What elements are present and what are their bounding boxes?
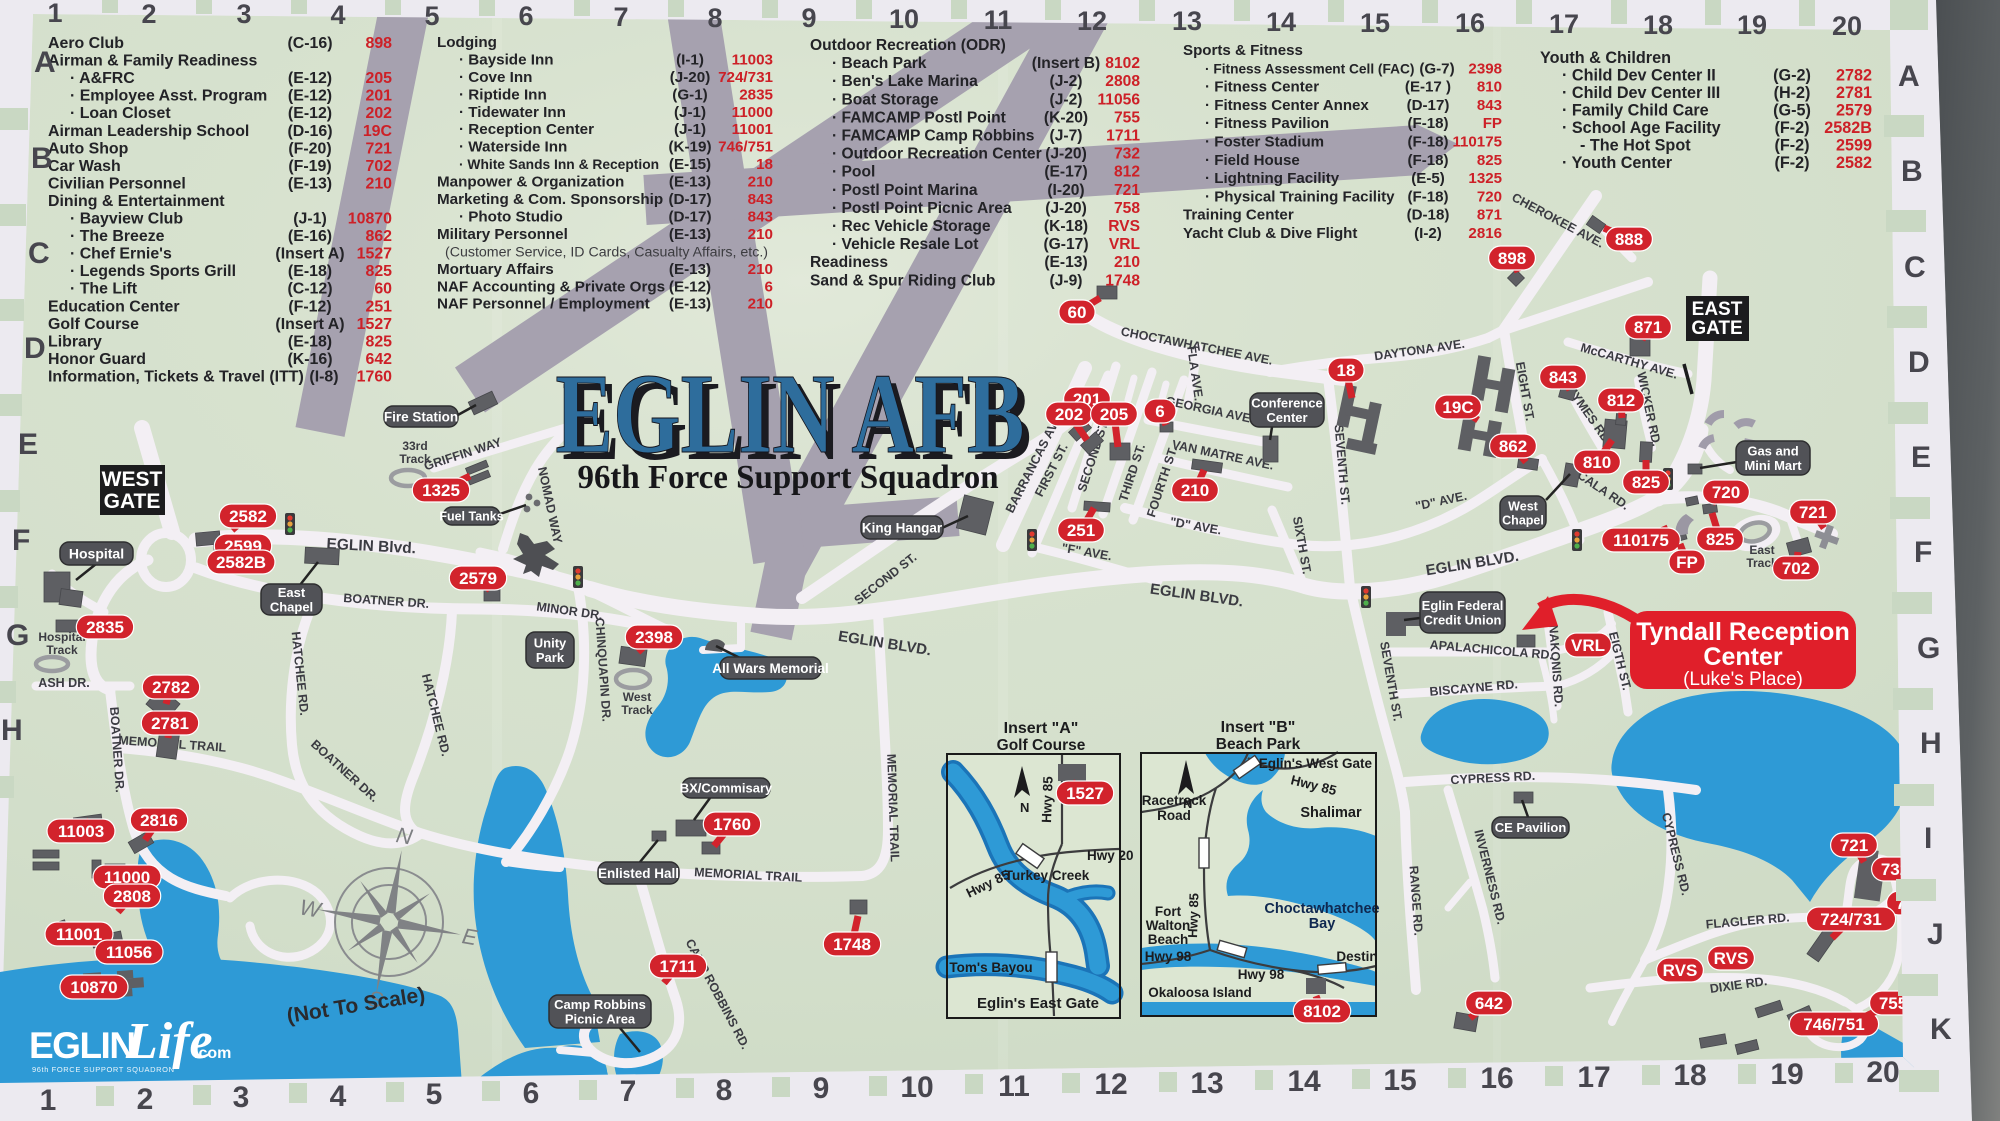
svg-text:· Fitness Center Annex: · Fitness Center Annex — [1205, 97, 1369, 114]
svg-text:812: 812 — [1607, 391, 1635, 410]
svg-text:2579: 2579 — [1836, 102, 1872, 120]
svg-text:202: 202 — [1055, 405, 1083, 424]
svg-text:20: 20 — [1866, 1056, 1899, 1089]
svg-text:Manpower & Organization: Manpower & Organization — [437, 174, 624, 191]
svg-text:888: 888 — [1615, 230, 1643, 249]
svg-text:(E-13): (E-13) — [288, 175, 332, 192]
svg-text:Credit Union: Credit Union — [1424, 612, 1502, 627]
svg-text:10870: 10870 — [70, 978, 117, 997]
svg-text:Sand & Spur Riding Club: Sand & Spur Riding Club — [810, 272, 995, 289]
svg-text:1325: 1325 — [422, 481, 460, 500]
svg-text:19C: 19C — [363, 123, 393, 140]
svg-text:(J-20): (J-20) — [1045, 200, 1087, 217]
svg-text:(Insert B): (Insert B) — [1032, 55, 1100, 72]
svg-text:210: 210 — [1114, 254, 1140, 271]
svg-text:9: 9 — [813, 1072, 830, 1105]
svg-text:862: 862 — [1499, 437, 1527, 456]
svg-text:16: 16 — [1455, 8, 1485, 38]
svg-text:6: 6 — [765, 278, 773, 295]
svg-text:11003: 11003 — [732, 52, 773, 69]
svg-text:96th Force Support Squadron: 96th Force Support Squadron — [577, 459, 998, 497]
svg-text:Library: Library — [48, 333, 102, 350]
svg-text:96th FORCE SUPPORT SQUADRON: 96th FORCE SUPPORT SQUADRON — [32, 1065, 175, 1074]
svg-text:Turkey Creek: Turkey Creek — [1005, 868, 1090, 883]
svg-text:Destin: Destin — [1336, 949, 1377, 964]
svg-text:(E-12): (E-12) — [288, 88, 332, 105]
svg-text:(K-20): (K-20) — [1044, 109, 1088, 126]
svg-text:Eglin Federal: Eglin Federal — [1422, 598, 1504, 613]
svg-text:· Youth Center: · Youth Center — [1562, 154, 1673, 172]
svg-text:Lodging: Lodging — [437, 34, 497, 51]
svg-text:10: 10 — [889, 4, 919, 34]
svg-text:· Photo Studio: · Photo Studio — [459, 209, 563, 226]
svg-text:(E-12): (E-12) — [669, 278, 711, 295]
svg-text:A: A — [1898, 60, 1920, 93]
svg-text:11000: 11000 — [732, 104, 773, 121]
svg-text:18: 18 — [1643, 10, 1673, 40]
svg-text:· Ben's Lake Marina: · Ben's Lake Marina — [832, 73, 978, 90]
svg-text:Tom's Bayou: Tom's Bayou — [949, 960, 1032, 975]
svg-text:8: 8 — [707, 3, 722, 33]
svg-text:15: 15 — [1360, 8, 1390, 38]
svg-text:11056: 11056 — [1097, 91, 1140, 108]
svg-text:843: 843 — [748, 191, 773, 208]
svg-text:825: 825 — [1706, 530, 1734, 549]
svg-text:Training Center: Training Center — [1183, 207, 1294, 224]
svg-text:· Child Dev Center III: · Child Dev Center III — [1562, 84, 1720, 102]
svg-text:724/731: 724/731 — [1820, 910, 1881, 929]
svg-text:Beach Park: Beach Park — [1216, 736, 1301, 753]
svg-text:(G-5): (G-5) — [1773, 102, 1811, 120]
svg-text:11: 11 — [998, 1070, 1030, 1103]
svg-text:2582B: 2582B — [216, 553, 266, 572]
svg-text:Unity: Unity — [534, 635, 567, 650]
svg-text:(E-5): (E-5) — [1411, 170, 1445, 187]
svg-text:14: 14 — [1266, 7, 1296, 37]
svg-text:(Luke's Place): (Luke's Place) — [1683, 669, 1803, 690]
svg-text:Sports & Fitness: Sports & Fitness — [1183, 42, 1303, 59]
svg-text:11003: 11003 — [58, 822, 104, 841]
svg-text:· Bayview Club: · Bayview Club — [70, 211, 183, 228]
svg-text:702: 702 — [365, 158, 392, 175]
svg-text:- The Hot Spot: - The Hot Spot — [1580, 137, 1691, 155]
svg-text:Hwy 98: Hwy 98 — [1238, 967, 1285, 982]
svg-text:· Vehicle Resale Lot: · Vehicle Resale Lot — [832, 236, 978, 253]
svg-text:10: 10 — [900, 1071, 933, 1104]
svg-text:(I-1): (I-1) — [676, 52, 704, 69]
svg-text:Aero Club: Aero Club — [48, 35, 124, 52]
svg-text:Mini Mart: Mini Mart — [1744, 458, 1802, 473]
svg-text:F: F — [12, 524, 30, 557]
svg-text:· The Lift: · The Lift — [70, 281, 138, 298]
svg-text:D: D — [1908, 346, 1930, 379]
svg-text:East: East — [1749, 543, 1774, 557]
svg-text:843: 843 — [1549, 368, 1577, 387]
svg-text:E: E — [18, 428, 38, 461]
svg-text:(E-13): (E-13) — [669, 226, 711, 243]
svg-text:RVS: RVS — [1108, 218, 1140, 235]
svg-text:(J-1): (J-1) — [293, 211, 327, 228]
svg-text:· Pool: · Pool — [832, 164, 875, 181]
svg-text:6: 6 — [1155, 402, 1164, 421]
svg-text:EGLIN: EGLIN — [29, 1025, 135, 1066]
svg-text:33rd: 33rd — [402, 439, 427, 453]
svg-text:A: A — [34, 46, 56, 79]
svg-text:2579: 2579 — [459, 569, 497, 588]
svg-text:Enlisted Hall: Enlisted Hall — [598, 866, 679, 881]
svg-text:FP: FP — [1483, 115, 1502, 132]
svg-text:12: 12 — [1077, 6, 1107, 36]
svg-text:Insert "A": Insert "A" — [1004, 720, 1079, 737]
svg-text:Fire Station: Fire Station — [384, 409, 458, 424]
svg-text:825: 825 — [1632, 473, 1660, 492]
svg-text:Golf Course: Golf Course — [48, 316, 139, 333]
svg-text:H: H — [1920, 727, 1942, 760]
svg-text:1748: 1748 — [1105, 272, 1140, 289]
svg-text:(E-13): (E-13) — [669, 296, 711, 313]
svg-text:.com: .com — [194, 1045, 231, 1062]
svg-text:210: 210 — [748, 296, 773, 313]
svg-text:7: 7 — [620, 1075, 637, 1108]
svg-text:642: 642 — [365, 351, 392, 368]
svg-text:2: 2 — [137, 1083, 154, 1116]
svg-text:Track: Track — [46, 643, 78, 657]
svg-text:(E-15): (E-15) — [669, 156, 711, 173]
svg-text:19: 19 — [1737, 10, 1767, 40]
svg-text:RVS: RVS — [1714, 949, 1749, 968]
svg-text:(K-18): (K-18) — [1044, 218, 1088, 235]
svg-text:Choctawhatchee: Choctawhatchee — [1264, 901, 1379, 917]
svg-text:· Reception Center: · Reception Center — [459, 121, 594, 138]
svg-text:B: B — [31, 142, 53, 175]
svg-text:7: 7 — [613, 2, 628, 32]
svg-text:· Tidewater Inn: · Tidewater Inn — [459, 104, 566, 121]
svg-text:18: 18 — [1673, 1059, 1706, 1092]
svg-text:(D-17): (D-17) — [668, 209, 711, 226]
svg-text:110175: 110175 — [1452, 134, 1502, 151]
svg-text:(E-18): (E-18) — [288, 333, 332, 350]
svg-text:Camp Robbins: Camp Robbins — [554, 997, 646, 1012]
svg-text:Bay: Bay — [1309, 916, 1336, 932]
svg-text:1760: 1760 — [713, 815, 751, 834]
svg-text:Car Wash: Car Wash — [48, 158, 121, 175]
svg-text:Eglin's East Gate: Eglin's East Gate — [977, 995, 1099, 1012]
svg-text:2398: 2398 — [1468, 60, 1502, 77]
svg-text:Hospital: Hospital — [69, 546, 124, 562]
svg-text:Airman Leadership School: Airman Leadership School — [48, 123, 249, 140]
svg-text:Gas and: Gas and — [1747, 443, 1798, 458]
svg-text:· Outdoor Recreation Center: · Outdoor Recreation Center — [832, 146, 1042, 163]
svg-text:Park: Park — [536, 650, 565, 665]
svg-text:(H-2): (H-2) — [1774, 84, 1811, 102]
svg-text:(C-12): (C-12) — [287, 281, 332, 298]
svg-text:(J-1): (J-1) — [674, 104, 706, 121]
svg-text:Hwy 20: Hwy 20 — [1087, 848, 1134, 863]
svg-text:251: 251 — [1067, 521, 1095, 540]
svg-text:Youth & Children: Youth & Children — [1540, 49, 1671, 67]
svg-text:(K-19): (K-19) — [668, 139, 711, 156]
svg-text:(Insert A): (Insert A) — [275, 246, 344, 263]
svg-text:(Customer Service, ID Cards, C: (Customer Service, ID Cards, Casualty Af… — [445, 244, 768, 260]
svg-text:(G-17): (G-17) — [1043, 236, 1088, 253]
svg-text:(G-1): (G-1) — [672, 86, 707, 103]
svg-text:· FAMCAMP Camp Robbins: · FAMCAMP Camp Robbins — [832, 128, 1035, 145]
svg-text:251: 251 — [365, 298, 392, 315]
svg-text:746/751: 746/751 — [718, 139, 773, 156]
svg-text:(F-19): (F-19) — [288, 158, 331, 175]
svg-text:Military Personnel: Military Personnel — [437, 226, 568, 243]
svg-text:721: 721 — [1799, 503, 1827, 522]
svg-text:(I-8): (I-8) — [309, 369, 338, 386]
svg-text:642: 642 — [1475, 994, 1503, 1013]
svg-text:Hwy 98: Hwy 98 — [1145, 949, 1192, 964]
svg-text:Yacht Club & Dive Flight: Yacht Club & Dive Flight — [1183, 225, 1357, 242]
svg-text:(F-18): (F-18) — [1407, 188, 1448, 205]
svg-text:· Chef Ernie's: · Chef Ernie's — [70, 246, 172, 263]
svg-text:Marketing & Com. Sponsorship: Marketing & Com. Sponsorship — [437, 191, 663, 208]
svg-text:825: 825 — [1477, 152, 1502, 169]
svg-text:Track: Track — [399, 452, 431, 466]
svg-text:· Child Dev Center II: · Child Dev Center II — [1562, 67, 1716, 85]
svg-text:East: East — [278, 585, 306, 600]
svg-text:4: 4 — [330, 1080, 347, 1113]
svg-text:11001: 11001 — [56, 925, 102, 944]
svg-text:F: F — [1914, 536, 1932, 569]
svg-text:C: C — [1904, 251, 1926, 284]
svg-text:B: B — [1901, 155, 1923, 188]
svg-text:· Field House: · Field House — [1205, 152, 1300, 169]
svg-text:· Riptide Inn: · Riptide Inn — [459, 86, 547, 103]
svg-text:(E-18): (E-18) — [288, 263, 332, 280]
svg-text:(E-13): (E-13) — [1044, 254, 1087, 271]
svg-text:Civilian Personnel: Civilian Personnel — [48, 175, 186, 192]
svg-text:2782: 2782 — [152, 678, 190, 697]
svg-text:8102: 8102 — [1105, 55, 1140, 72]
svg-text:1711: 1711 — [1106, 128, 1140, 145]
svg-text:· Lightning Facility: · Lightning Facility — [1205, 170, 1340, 187]
svg-text:VRL: VRL — [1109, 236, 1141, 253]
svg-text:(C-16): (C-16) — [287, 35, 332, 52]
svg-text:2599: 2599 — [1836, 137, 1872, 155]
svg-text:FP: FP — [1676, 553, 1698, 572]
svg-text:RVS: RVS — [1663, 961, 1698, 980]
svg-text:758: 758 — [1114, 200, 1140, 217]
svg-text:(E-13): (E-13) — [669, 174, 711, 191]
svg-text:(F-2): (F-2) — [1774, 154, 1809, 172]
svg-text:1711: 1711 — [660, 957, 697, 976]
svg-text:Road: Road — [1157, 808, 1191, 823]
svg-text:13: 13 — [1172, 6, 1202, 36]
svg-text:825: 825 — [365, 263, 392, 280]
svg-text:H: H — [1, 714, 23, 747]
svg-text:(I-20): (I-20) — [1047, 182, 1084, 199]
svg-text:· Rec Vehicle Storage: · Rec Vehicle Storage — [832, 218, 991, 235]
svg-text:· Boat Storage: · Boat Storage — [832, 91, 939, 108]
svg-text:5: 5 — [424, 1, 439, 31]
svg-text:(E-17 ): (E-17 ) — [1405, 79, 1451, 96]
svg-text:60: 60 — [374, 281, 392, 298]
svg-text:2781: 2781 — [151, 714, 189, 733]
svg-text:12: 12 — [1094, 1068, 1127, 1101]
svg-text:19C: 19C — [1442, 398, 1473, 417]
svg-text:19: 19 — [1770, 1058, 1803, 1091]
svg-text:2835: 2835 — [86, 618, 124, 637]
svg-text:Chapel: Chapel — [270, 599, 313, 614]
svg-text:Fuel Tanks: Fuel Tanks — [439, 510, 503, 524]
svg-text:17: 17 — [1577, 1061, 1610, 1094]
svg-text:871: 871 — [1477, 207, 1502, 224]
svg-text:Dining & Entertainment: Dining & Entertainment — [48, 193, 225, 210]
svg-text:Hwy 85: Hwy 85 — [1039, 776, 1056, 824]
svg-text:Beach: Beach — [1148, 932, 1189, 947]
svg-text:I: I — [1924, 822, 1932, 855]
svg-text:2816: 2816 — [140, 811, 178, 830]
svg-text:2782: 2782 — [1836, 67, 1872, 85]
svg-text:898: 898 — [365, 35, 392, 52]
svg-text:NAF Accounting & Private Orgs: NAF Accounting & Private Orgs — [437, 278, 665, 295]
svg-text:King Hangar: King Hangar — [862, 520, 943, 535]
svg-text:K: K — [1930, 1013, 1952, 1046]
svg-text:J: J — [1927, 918, 1944, 951]
svg-text:18: 18 — [756, 156, 773, 173]
svg-text:205: 205 — [1100, 405, 1128, 424]
svg-text:8102: 8102 — [1303, 1002, 1341, 1021]
svg-text:210: 210 — [1181, 481, 1209, 500]
svg-text:· The Breeze: · The Breeze — [70, 228, 165, 245]
svg-text:210: 210 — [748, 261, 773, 278]
svg-text:2: 2 — [141, 0, 156, 29]
svg-text:NAF Personnel / Employment: NAF Personnel / Employment — [437, 296, 650, 313]
svg-text:1527: 1527 — [1066, 784, 1104, 803]
svg-text:(D-16): (D-16) — [287, 123, 332, 140]
svg-text:(J-7): (J-7) — [1050, 128, 1083, 145]
svg-text:Information, Tickets & Travel: Information, Tickets & Travel (ITT) — [48, 369, 304, 386]
svg-text:1325: 1325 — [1468, 170, 1502, 187]
svg-text:Golf Course: Golf Course — [997, 737, 1086, 754]
svg-text:(E-12): (E-12) — [288, 70, 332, 87]
svg-text:Honor Guard: Honor Guard — [48, 351, 146, 368]
svg-text:8: 8 — [716, 1074, 733, 1107]
svg-text:E: E — [1911, 441, 1931, 474]
svg-text:(E-17): (E-17) — [1044, 164, 1087, 181]
svg-text:13: 13 — [1190, 1067, 1223, 1100]
svg-text:9: 9 — [801, 3, 816, 33]
svg-text:825: 825 — [365, 333, 392, 350]
svg-text:All Wars Memorial: All Wars Memorial — [712, 661, 829, 676]
svg-text:VRL: VRL — [1571, 636, 1605, 655]
svg-text:14: 14 — [1287, 1065, 1321, 1098]
svg-text:Track: Track — [621, 703, 653, 717]
svg-text:2398: 2398 — [635, 628, 673, 647]
svg-text:210: 210 — [365, 175, 392, 192]
svg-text:755: 755 — [1114, 109, 1140, 126]
svg-text:810: 810 — [1477, 79, 1502, 96]
svg-text:(E-13): (E-13) — [669, 261, 711, 278]
svg-text:· Physical Training Facility: · Physical Training Facility — [1205, 188, 1395, 205]
svg-text:(J-1): (J-1) — [674, 121, 706, 138]
svg-text:C: C — [28, 237, 50, 270]
svg-text:862: 862 — [365, 228, 392, 245]
svg-text:· Foster Stadium: · Foster Stadium — [1205, 134, 1324, 151]
svg-text:16: 16 — [1480, 1062, 1513, 1095]
svg-text:11001: 11001 — [732, 121, 774, 138]
svg-text:110175: 110175 — [1613, 531, 1669, 550]
svg-text:(F-18): (F-18) — [1407, 115, 1448, 132]
svg-text:17: 17 — [1549, 9, 1579, 39]
svg-text:· Legends Sports Grill: · Legends Sports Grill — [70, 263, 236, 280]
svg-text:202: 202 — [365, 105, 392, 122]
svg-text:(J-20): (J-20) — [1045, 146, 1087, 163]
svg-text:1527: 1527 — [357, 246, 393, 263]
svg-text:Outdoor Recreation (ODR): Outdoor Recreation (ODR) — [810, 37, 1006, 54]
svg-text:871: 871 — [1634, 318, 1662, 337]
svg-text:2808: 2808 — [1105, 73, 1140, 90]
svg-text:Chapel: Chapel — [1502, 514, 1544, 528]
svg-text:· Employee Asst. Program: · Employee Asst. Program — [70, 88, 267, 105]
svg-text:810: 810 — [1583, 453, 1611, 472]
svg-text:2582: 2582 — [1836, 154, 1872, 172]
svg-text:Mortuary Affairs: Mortuary Affairs — [437, 261, 554, 278]
svg-text:WEST: WEST — [102, 468, 163, 491]
svg-text:N: N — [1020, 800, 1029, 815]
svg-text:Readiness: Readiness — [810, 254, 888, 271]
svg-text:201: 201 — [365, 88, 392, 105]
svg-text:746/751: 746/751 — [1803, 1015, 1864, 1034]
svg-text:· FAMCAMP Postl Point: · FAMCAMP Postl Point — [832, 109, 1006, 126]
svg-text:G: G — [1917, 632, 1940, 665]
svg-text:Picnic Area: Picnic Area — [565, 1011, 636, 1026]
svg-text:210: 210 — [748, 226, 773, 243]
svg-text:D: D — [24, 332, 46, 365]
svg-text:Center: Center — [1266, 410, 1307, 425]
svg-text:2781: 2781 — [1836, 84, 1872, 102]
svg-text:Conference: Conference — [1251, 395, 1323, 410]
svg-text:812: 812 — [1114, 164, 1140, 181]
svg-text:18: 18 — [1337, 361, 1356, 380]
svg-text:2582: 2582 — [229, 507, 267, 526]
svg-text:BX/Commisary: BX/Commisary — [680, 781, 773, 796]
svg-text:(F-20): (F-20) — [288, 140, 331, 157]
svg-text:· White Sands Inn & Reception: · White Sands Inn & Reception — [459, 157, 659, 172]
svg-text:843: 843 — [748, 209, 773, 226]
svg-text:ASH DR.: ASH DR. — [38, 676, 89, 690]
svg-text:· Postl Point Marina: · Postl Point Marina — [832, 182, 978, 199]
svg-text:· Beach Park: · Beach Park — [832, 55, 927, 72]
svg-text:898: 898 — [1498, 249, 1526, 268]
svg-text:11: 11 — [984, 5, 1013, 35]
svg-text:(I-2): (I-2) — [1414, 225, 1442, 242]
svg-text:6: 6 — [518, 1, 533, 31]
svg-text:3: 3 — [236, 0, 251, 29]
svg-text:GATE: GATE — [1691, 318, 1742, 339]
svg-text:(D-17): (D-17) — [668, 191, 711, 208]
svg-text:Insert "B": Insert "B" — [1221, 719, 1296, 736]
svg-text:20: 20 — [1832, 11, 1862, 41]
svg-text:· Fitness Center: · Fitness Center — [1205, 79, 1319, 96]
svg-text:732: 732 — [1114, 146, 1140, 163]
svg-text:721: 721 — [365, 140, 392, 157]
svg-text:West: West — [623, 690, 651, 704]
svg-text:(Insert A): (Insert A) — [275, 316, 344, 333]
svg-text:Fort: Fort — [1155, 904, 1182, 919]
svg-text:Airman & Family Readiness: Airman & Family Readiness — [48, 53, 257, 70]
svg-text:1: 1 — [40, 1084, 57, 1117]
svg-text:5: 5 — [426, 1078, 443, 1111]
svg-text:(E-16): (E-16) — [288, 228, 332, 245]
svg-text:(K-16): (K-16) — [287, 351, 332, 368]
svg-text:· Loan Closet: · Loan Closet — [70, 105, 171, 122]
svg-text:702: 702 — [1782, 559, 1810, 578]
